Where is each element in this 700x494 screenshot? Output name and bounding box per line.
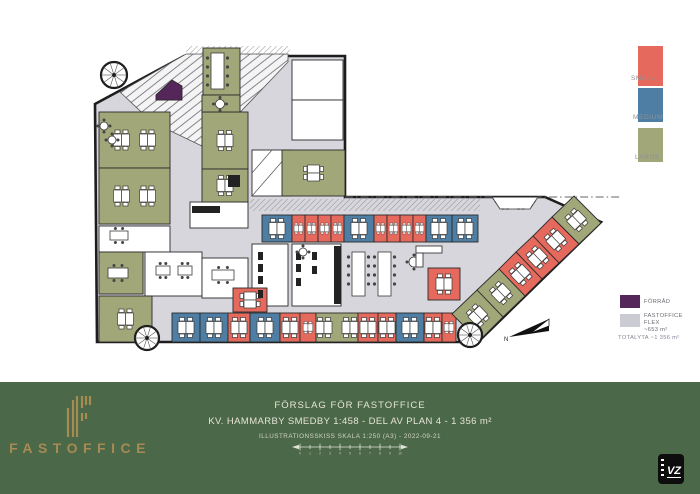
viz-logo-text: VZ	[667, 466, 681, 478]
legend-label-medium: MEDIUM	[633, 114, 663, 121]
viz-logo: VZ	[658, 454, 684, 484]
sheet-subtitle: KV. HAMMARBY SMEDBY 1:458 - DEL AV PLAN …	[175, 416, 525, 427]
svg-text:4: 4	[339, 452, 341, 456]
sheet-meta: ILLUSTRATIONSSKISS SKALA 1:250 (A3) - 20…	[175, 433, 525, 440]
title-block: FÖRSLAG FÖR FASTOFFICE KV. HAMMARBY SMED…	[175, 400, 525, 456]
legend-label-forrad: FÖRRÅD	[644, 299, 670, 306]
fastoffice-logo: FASTOFFICE	[0, 392, 160, 456]
legend-label-flex: FASTOFFICE FLEX ~653 m²	[644, 313, 700, 335]
north-arrow-label: N	[504, 337, 508, 343]
sheet-title: FÖRSLAG FÖR FASTOFFICE	[175, 400, 525, 411]
svg-text:2: 2	[319, 452, 321, 456]
legend-flex-area: ~653 m²	[644, 327, 668, 333]
sheet: N SMALL MEDIUM LARGE FÖRRÅD FASTOFFICE F…	[0, 0, 700, 494]
legend-swatch-flex	[620, 314, 640, 327]
floor-plan: N	[0, 0, 700, 382]
svg-text:6: 6	[359, 452, 361, 456]
fastoffice-monogram-icon	[65, 396, 95, 438]
svg-text:10: 10	[398, 452, 402, 456]
scale-bar: 012345678910	[290, 442, 410, 456]
total-area-label: TOTALYTA ~1 356 m²	[618, 335, 680, 341]
legend-label-large: LARGE	[635, 154, 660, 161]
footer: FASTOFFICE FÖRSLAG FÖR FASTOFFICE KV. HA…	[0, 382, 700, 494]
legend-flex-title: FASTOFFICE FLEX	[644, 313, 683, 326]
svg-text:5: 5	[349, 452, 351, 456]
svg-text:9: 9	[389, 452, 391, 456]
svg-text:1: 1	[309, 452, 311, 456]
svg-text:8: 8	[379, 452, 381, 456]
svg-text:7: 7	[369, 452, 371, 456]
svg-text:0: 0	[299, 452, 301, 456]
svg-text:3: 3	[329, 452, 331, 456]
brand-name: FASTOFFICE	[0, 440, 160, 456]
legend-swatch-forrad	[620, 295, 640, 308]
legend-label-small: SMALL	[631, 75, 655, 82]
viz-logo-dots	[661, 459, 664, 477]
